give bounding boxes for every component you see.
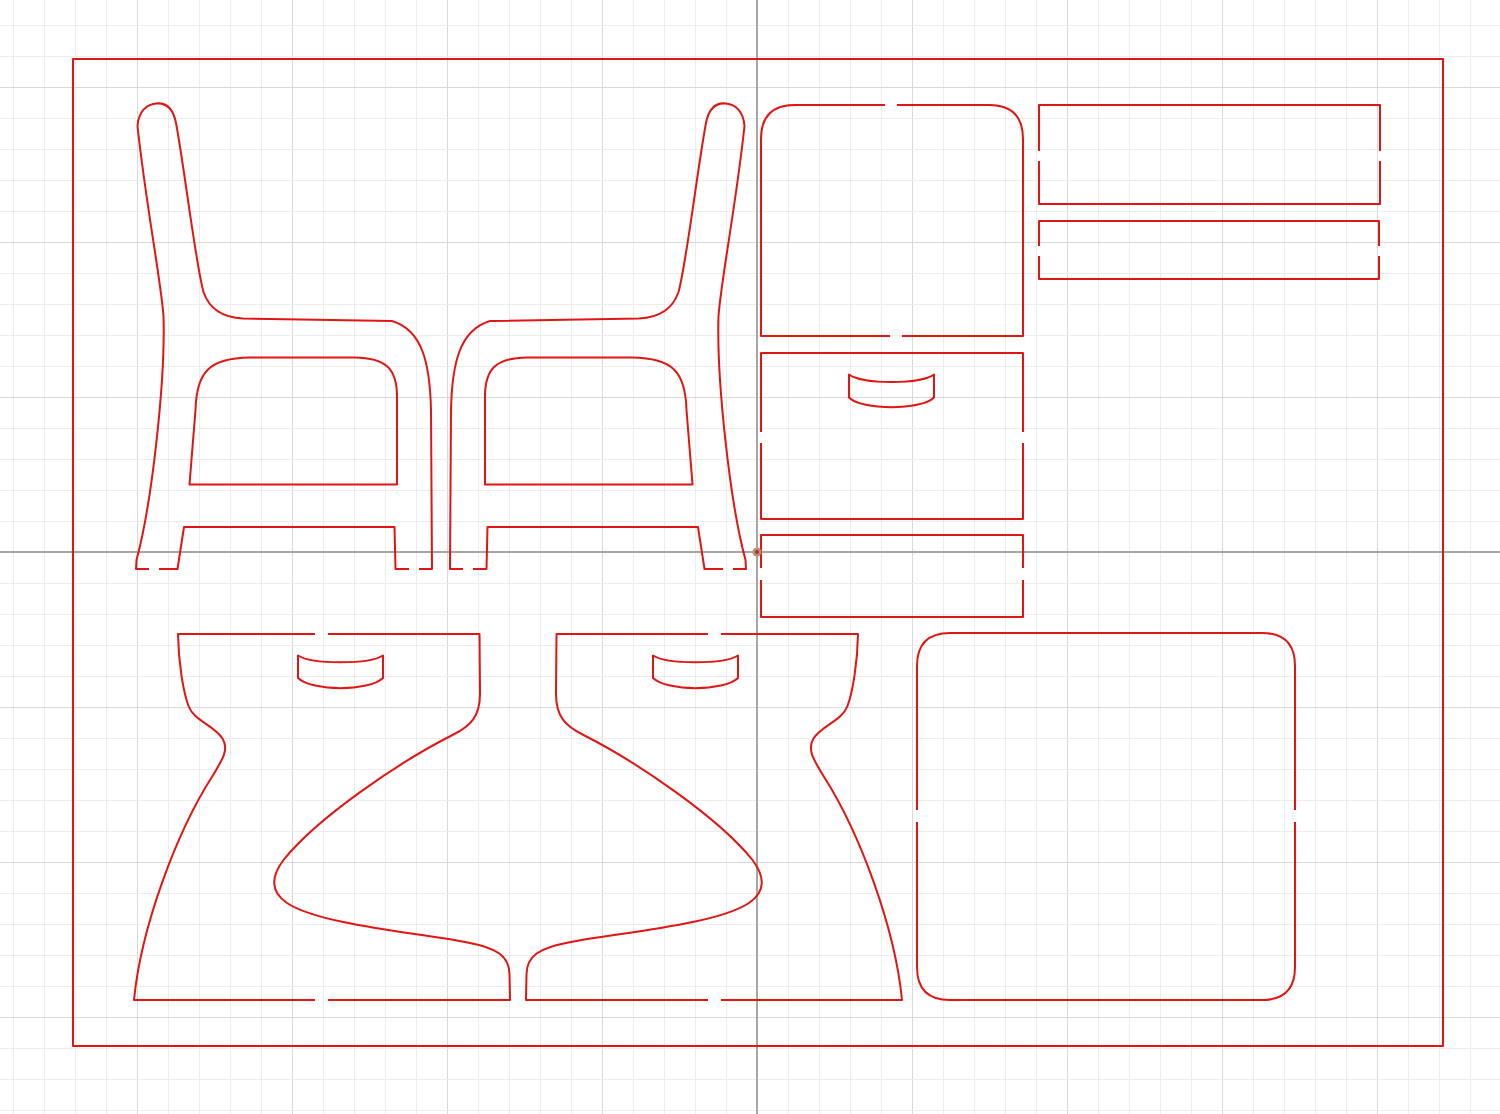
part-chair-side-left-outline[interactable] — [136, 103, 432, 569]
part-chair-side-right-window[interactable] — [485, 358, 693, 485]
part-chair-side-right-outline[interactable] — [450, 103, 746, 569]
grid — [0, 0, 1500, 1114]
origin-marker-inner — [755, 550, 759, 554]
part-bottom-rail[interactable] — [761, 535, 1023, 617]
axes — [0, 0, 1500, 1114]
part-seat-panel[interactable] — [917, 633, 1295, 1000]
drawing-svg[interactable] — [0, 0, 1500, 1114]
origin-marker — [753, 548, 762, 557]
part-drawer-front[interactable] — [761, 353, 1023, 519]
part-rail-wide[interactable] — [1039, 105, 1380, 204]
cad-viewport[interactable] — [0, 0, 1500, 1114]
part-back-panel[interactable] — [761, 105, 1023, 336]
part-drawer-front-handle[interactable] — [849, 375, 934, 408]
part-base-side-left-outline[interactable] — [134, 634, 510, 1000]
part-base-side-right-outline[interactable] — [526, 634, 902, 1000]
part-rail-narrow[interactable] — [1039, 221, 1379, 279]
part-base-side-left-handle[interactable] — [298, 656, 383, 689]
